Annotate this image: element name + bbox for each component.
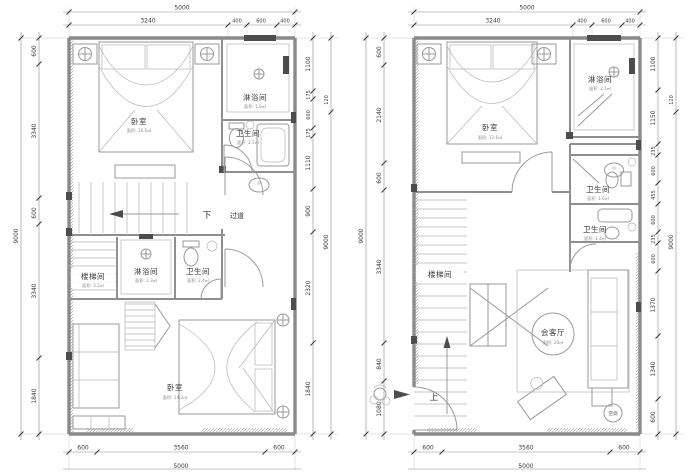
dim-label: 235 <box>651 146 657 156</box>
down-label: 下 <box>203 211 212 221</box>
dim-label: 1370 <box>650 297 657 312</box>
ceiling-light-icon <box>423 48 436 61</box>
wc-top: 卫生间 面积: 2.1㎡ <box>224 121 289 173</box>
room-area: 面积: 2.1㎡ <box>589 85 612 92</box>
room-label: 楼梯间 <box>428 269 452 279</box>
entry-arrow-icon <box>394 390 410 399</box>
extension-lines <box>16 7 339 470</box>
room-label: 卫生间 <box>186 266 210 276</box>
dim-label: 1150 <box>650 110 657 125</box>
sink <box>249 178 269 192</box>
corridor-label: 过道 <box>230 211 244 220</box>
shower-head-icon <box>141 249 151 259</box>
bedroom-bottom: 卧室 面积: 14.2㎡ <box>73 314 289 429</box>
bedroom: 卧室 面积: 12.6㎡ <box>417 42 556 192</box>
floor-plan-left: 5000 3240 400 600 400 9000 600 3340 600 … <box>7 2 347 472</box>
stair-room: 楼梯间 面积: 3.2㎡ <box>69 242 117 290</box>
dim-label: 3240 <box>140 18 155 25</box>
dim-chain-bottom: 600 3560 600 5000 <box>408 445 646 471</box>
floor-plan-sheet: { "drawing": { "plans": [ { "title": "le… <box>0 0 694 473</box>
dim-chain-top: 5000 3240 400 600 400 <box>63 5 301 28</box>
desk-and-chair <box>512 368 566 419</box>
room-label: 会客厅 <box>541 327 565 337</box>
double-bed <box>99 42 193 152</box>
room-label: 淋浴间 <box>243 92 267 102</box>
up-arrow-icon <box>444 336 451 348</box>
dim-label: 400 <box>232 19 242 25</box>
dim-label: 175 <box>306 128 312 138</box>
door <box>512 152 552 192</box>
dim-label: 5000 <box>518 463 533 470</box>
dim-label: 455 <box>651 190 657 200</box>
dim-label: 600 <box>31 45 38 57</box>
room-label: 淋浴间 <box>588 74 612 84</box>
up-label: 上 <box>430 393 439 403</box>
shower-room-low: 淋浴间 面积: 2.3㎡ <box>121 234 171 294</box>
dim-label: 900 <box>305 205 312 217</box>
dim-chain-left: 9000 600 2140 600 3340 840 1080 <box>358 32 387 440</box>
stairs-mid <box>125 302 170 350</box>
door <box>570 244 596 270</box>
dim-label: 600 <box>651 254 657 264</box>
dim-chain-right: 1100 1150 235 600 455 600 235 600 1370 1… <box>650 32 679 440</box>
room-area: 面积: 1.6㎡ <box>587 195 610 202</box>
room-label: 卫生间 <box>586 184 610 194</box>
room-area: 面积: 1.8㎡ <box>244 103 267 110</box>
dim-label: 9000 <box>13 228 20 243</box>
dim-label: 2140 <box>376 107 383 122</box>
down-arrow-icon <box>109 210 123 218</box>
dim-label: 120 <box>669 95 675 105</box>
dim-label: 175 <box>306 90 312 100</box>
dim-label: 600 <box>618 445 630 452</box>
dim-label: 5000 <box>174 5 189 12</box>
dim-label: 1100 <box>305 56 312 71</box>
ceiling-light-icon <box>538 48 551 61</box>
stairwell: 楼梯间 上 <box>414 200 548 416</box>
double-bed <box>179 320 275 414</box>
dim-chain-right: 1100 175 600 175 1110 900 2320 1840 120 … <box>305 32 334 440</box>
bed-bench <box>462 152 520 163</box>
dim-label: 3560 <box>518 445 533 452</box>
floor-plan-right: 5000 3240 400 600 400 9000 600 2140 600 … <box>352 2 692 472</box>
dim-chain-top: 5000 3240 400 600 400 <box>408 5 646 28</box>
dim-label: 235 <box>651 234 657 244</box>
ac-unit: 空调 <box>604 404 622 422</box>
room-area: 面积: 1.4㎡ <box>584 235 607 242</box>
room-area: 面积: 2.3㎡ <box>135 277 158 284</box>
shower-room: 淋浴间 面积: 2.1㎡ <box>574 44 635 130</box>
room-label: 卧室 <box>167 382 183 392</box>
dim-label: 600 <box>422 445 434 452</box>
dim-label: 600 <box>376 46 383 58</box>
dim-label: 600 <box>273 445 285 452</box>
dim-label: 1100 <box>650 56 657 71</box>
room-label: 卫生间 <box>583 224 607 234</box>
dim-label: 3240 <box>485 18 500 25</box>
room-label: 卧室 <box>131 116 147 126</box>
sofa <box>588 270 628 388</box>
room-area: 面积: 2.1㎡ <box>237 139 260 146</box>
dim-label: 3340 <box>376 259 383 274</box>
dim-label: 400 <box>577 19 587 25</box>
dim-label: 840 <box>376 358 383 370</box>
dim-label: 1110 <box>305 155 312 170</box>
shower-room-top: 淋浴间 面积: 1.8㎡ <box>227 44 289 112</box>
dim-label: 600 <box>31 207 38 219</box>
dim-label: 5000 <box>173 463 188 470</box>
wc-1: 卫生间 面积: 1.6㎡ <box>573 158 636 202</box>
dim-label: 120 <box>324 95 330 105</box>
dim-label: 400 <box>280 19 290 25</box>
ceiling-light-icon <box>277 406 289 418</box>
walls <box>411 35 641 434</box>
dim-label: 9000 <box>358 228 365 243</box>
dim-label: 9000 <box>668 234 675 249</box>
dim-label: 1080 <box>376 401 383 416</box>
dim-label: 3560 <box>173 445 188 452</box>
dim-label: 3340 <box>31 123 38 138</box>
dim-chain-bottom: 600 3560 600 5000 <box>63 445 301 471</box>
room-area: 面积: 16.5㎡ <box>127 127 152 134</box>
dim-label: 600 <box>306 110 312 120</box>
dim-label: 600 <box>651 166 657 176</box>
dim-label: 3340 <box>31 283 38 298</box>
wc-low: 卫生间 面积: 2.4㎡ <box>183 241 221 299</box>
dim-label: 1840 <box>305 381 312 396</box>
corridor: 下 过道 <box>79 157 269 233</box>
ceiling-light-icon <box>277 314 289 326</box>
dim-label: 5000 <box>519 5 534 12</box>
room-label: 楼梯间 <box>81 271 105 281</box>
ceiling-light-icon <box>201 48 214 61</box>
dim-label: 2320 <box>305 280 312 295</box>
ceiling-light-icon <box>79 48 92 61</box>
room-area: 面积: 14.2㎡ <box>163 394 188 401</box>
dim-label: 600 <box>601 19 611 25</box>
dim-label: 600 <box>256 19 266 25</box>
room-area: 面积: 2.4㎡ <box>187 277 210 284</box>
shower-head-icon <box>254 69 264 79</box>
room-area: 面积: 12.6㎡ <box>478 134 503 141</box>
dim-label: 1840 <box>31 388 38 403</box>
dim-chain-left: 9000 600 3340 600 3340 1840 <box>13 32 42 440</box>
side-table <box>592 388 612 406</box>
dim-label: 600 <box>376 172 383 184</box>
dim-label: 400 <box>625 19 635 25</box>
dim-label: 600 <box>651 215 657 225</box>
room-area: 面积: 20㎡ <box>543 339 564 346</box>
bedroom-top: 卧室 面积: 16.5㎡ <box>73 42 219 152</box>
dim-label: 600 <box>650 411 657 423</box>
extension-lines <box>361 7 684 470</box>
room-area: 面积: 3.2㎡ <box>82 282 105 289</box>
door <box>225 249 263 287</box>
room-label: 卧室 <box>482 122 498 132</box>
dim-label: 1340 <box>650 361 657 376</box>
room-label: 卫生间 <box>236 128 260 138</box>
living-room: 会客厅 面积: 20㎡ 空调 <box>512 270 629 422</box>
dim-label: 9000 <box>323 234 330 249</box>
room-label: 淋浴间 <box>134 266 158 276</box>
ac-label: 空调 <box>609 410 618 417</box>
dim-label: 600 <box>77 445 89 452</box>
wc-2: 卫生间 面积: 1.4㎡ <box>570 209 636 270</box>
